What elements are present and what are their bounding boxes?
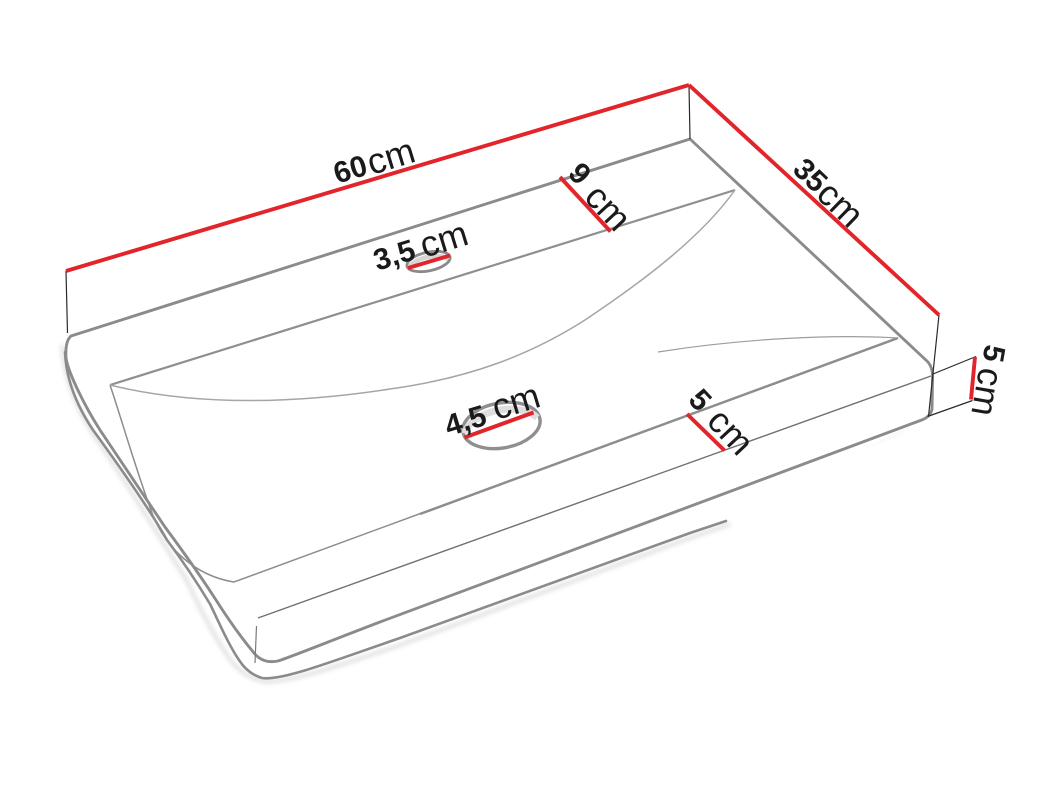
svg-text:cm: cm — [963, 365, 1012, 419]
